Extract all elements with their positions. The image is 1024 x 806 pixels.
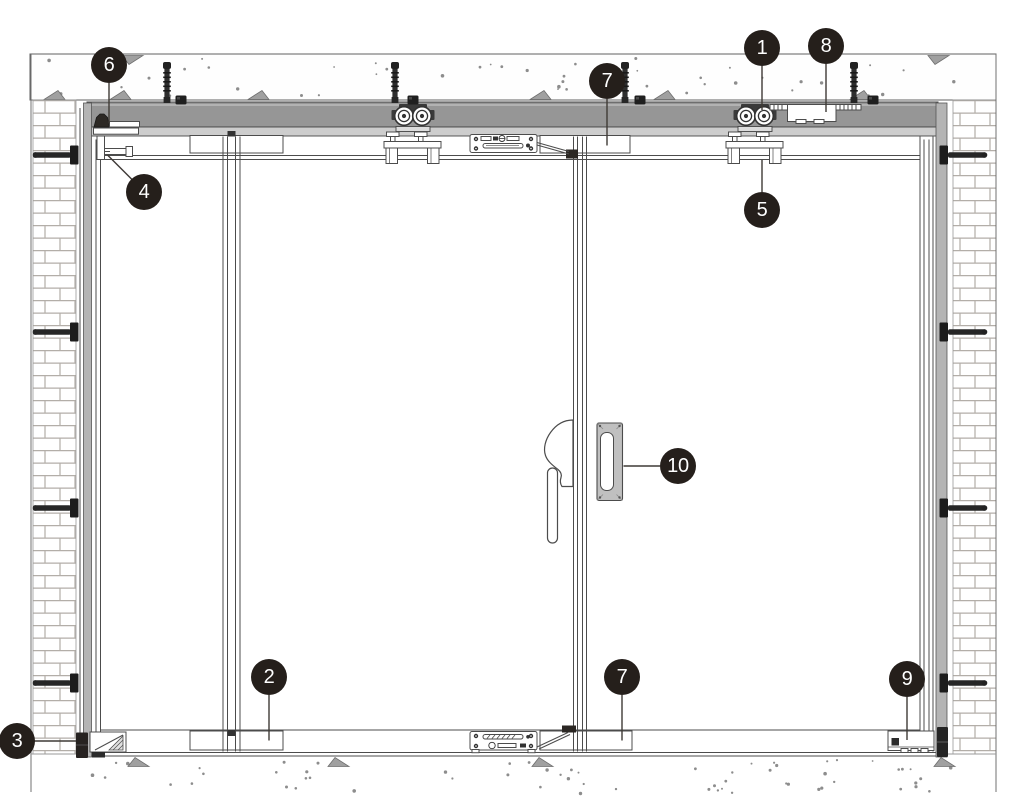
callout-7-bottom: 7 [604, 659, 640, 695]
bottom-latch-plate [470, 732, 537, 753]
brick-wall-right [953, 100, 996, 754]
callout-3: 3 [0, 723, 35, 759]
door-assembly-drawing [0, 0, 1024, 806]
top-latch-plate [470, 135, 537, 153]
callout-5: 5 [744, 192, 780, 228]
callout-4: 4 [126, 174, 162, 210]
frame-jamb-left [80, 103, 92, 757]
concrete-floor [31, 753, 996, 796]
concrete-speckles-bottom [91, 759, 953, 795]
callout-10: 10 [660, 448, 696, 484]
door-panel-stiles [96, 137, 933, 752]
brick-wall-left [33, 100, 76, 754]
callout-2: 2 [251, 659, 287, 695]
jamb-foot-right [937, 727, 948, 757]
callout-6: 6 [91, 47, 127, 83]
stile-junction-fittings [228, 131, 579, 749]
top-bracket-meeting-stile [540, 136, 630, 154]
callout-9: 9 [889, 661, 925, 697]
callout-leaders [35, 64, 908, 741]
lever-handle [545, 420, 573, 543]
callout-1: 1 [744, 30, 780, 66]
concrete-symbols-bottom [128, 758, 955, 767]
frame-jamb-right [936, 103, 947, 757]
callout-8: 8 [808, 28, 844, 64]
callout-7-top: 7 [589, 63, 625, 99]
top-bracket-left-stile [190, 136, 283, 154]
recessed-pull-handle [597, 423, 623, 501]
installation-diagram: 1 2 3 4 5 6 7 7 8 9 10 [0, 0, 1024, 806]
floor-damper [888, 731, 934, 753]
floor-line [76, 753, 938, 757]
floor-guide [76, 732, 126, 758]
